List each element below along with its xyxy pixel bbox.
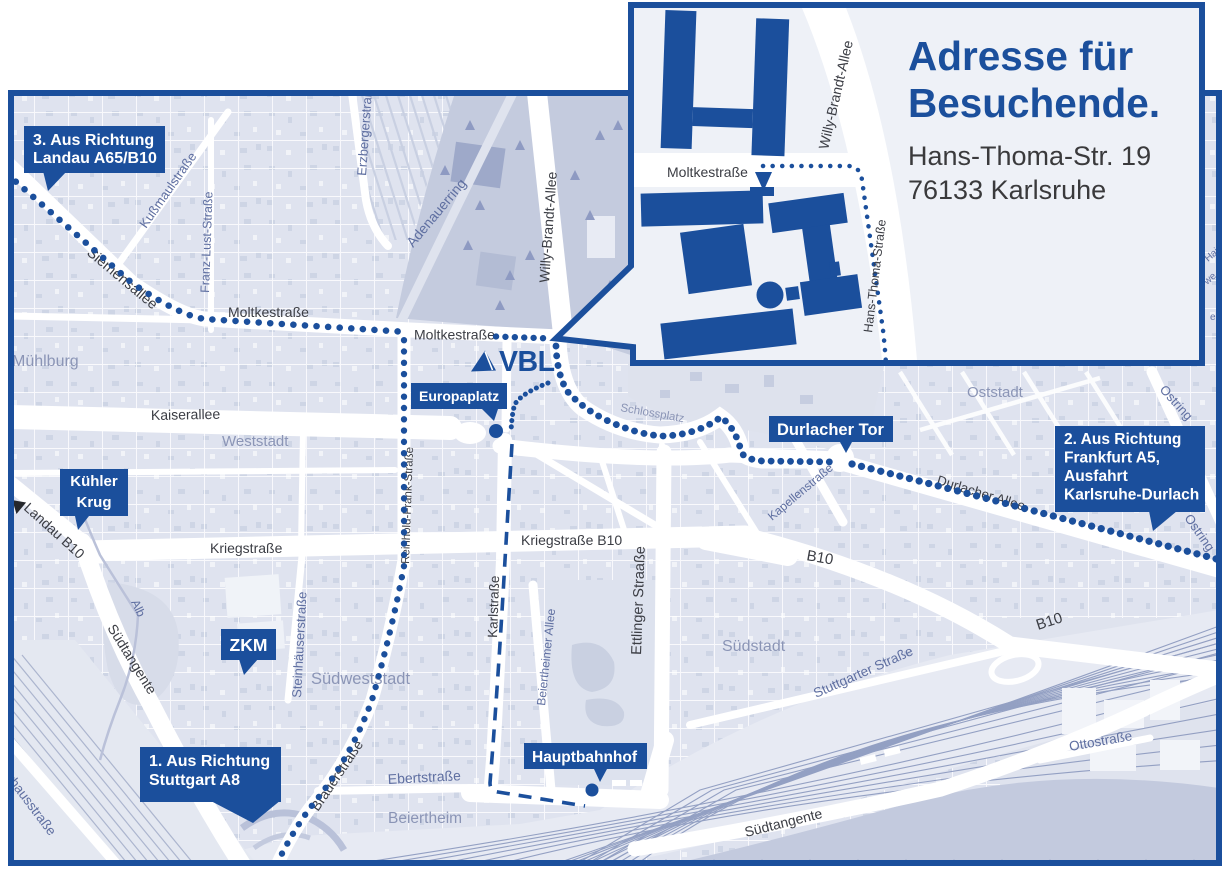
- svg-text:Oststadt: Oststadt: [967, 384, 1024, 401]
- svg-text:Mühlburg: Mühlburg: [12, 353, 79, 370]
- svg-text:Adresse für: Adresse für: [908, 33, 1133, 79]
- svg-text:Moltkestraße: Moltkestraße: [414, 327, 495, 343]
- svg-text:Kühler: Kühler: [70, 473, 118, 490]
- svg-text:Hauptbahnhof: Hauptbahnhof: [532, 749, 638, 766]
- svg-text:Frankfurt A5,: Frankfurt A5,: [1064, 450, 1160, 467]
- svg-text:Ausfahrt: Ausfahrt: [1064, 468, 1128, 485]
- svg-text:Durlacher Tor: Durlacher Tor: [777, 421, 885, 439]
- svg-text:Moltkestraße: Moltkestraße: [228, 304, 309, 320]
- svg-text:Landau A65/B10: Landau A65/B10: [33, 150, 157, 167]
- svg-text:ZKM: ZKM: [230, 635, 268, 655]
- svg-text:Krug: Krug: [77, 494, 112, 511]
- svg-text:76133 Karlsruhe: 76133 Karlsruhe: [908, 175, 1106, 205]
- svg-text:VBL: VBL: [499, 346, 555, 378]
- svg-text:Weststadt: Weststadt: [222, 433, 289, 450]
- svg-text:Moltkestraße: Moltkestraße: [667, 164, 748, 180]
- svg-text:Kriegstraße: Kriegstraße: [210, 540, 283, 556]
- svg-text:3. Aus Richtung: 3. Aus Richtung: [33, 132, 154, 149]
- svg-text:Südweststadt: Südweststadt: [311, 670, 410, 688]
- svg-text:1. Aus Richtung: 1. Aus Richtung: [149, 753, 270, 770]
- svg-text:Kaiserallee: Kaiserallee: [151, 406, 221, 423]
- svg-text:Kriegstraße B10: Kriegstraße B10: [521, 532, 622, 548]
- svg-text:Südstadt: Südstadt: [722, 638, 786, 655]
- svg-text:Beiertheim: Beiertheim: [388, 810, 462, 827]
- svg-text:Hans-Thoma-Str. 19: Hans-Thoma-Str. 19: [908, 141, 1151, 171]
- svg-text:Besuchende.: Besuchende.: [908, 80, 1160, 126]
- svg-text:Stuttgart A8: Stuttgart A8: [149, 772, 240, 789]
- svg-text:2. Aus Richtung: 2. Aus Richtung: [1064, 431, 1181, 448]
- svg-text:Europaplatz: Europaplatz: [419, 388, 499, 404]
- svg-text:Karlsruhe-Durlach: Karlsruhe-Durlach: [1064, 487, 1199, 504]
